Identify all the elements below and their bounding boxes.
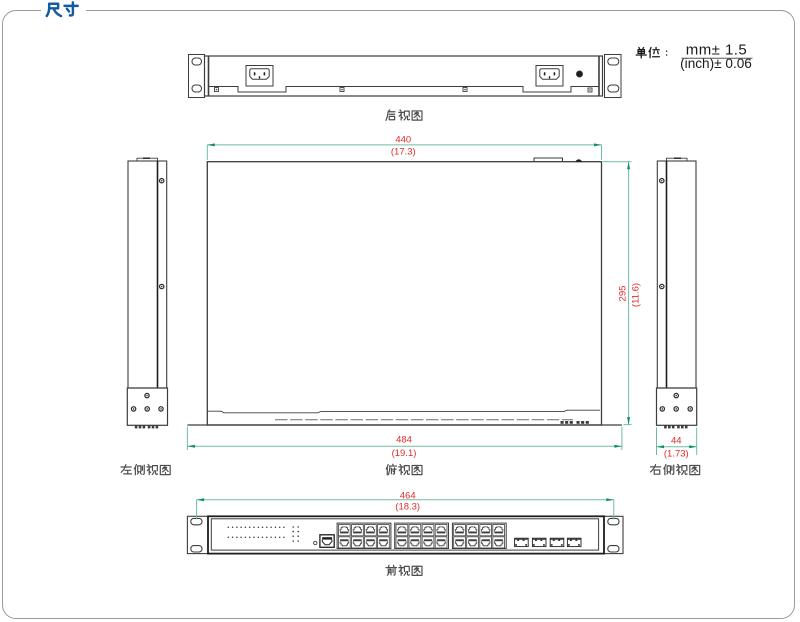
svg-text:440: 440 [395, 134, 411, 145]
svg-text:(11.6): (11.6) [631, 283, 642, 307]
svg-text:(19.1): (19.1) [392, 448, 417, 459]
svg-text:484: 484 [396, 434, 412, 445]
svg-text:464: 464 [400, 491, 416, 502]
svg-text:(18.3): (18.3) [395, 502, 420, 513]
svg-text:44: 44 [671, 436, 682, 447]
svg-text:(1.73): (1.73) [664, 449, 689, 460]
svg-text:(17.3): (17.3) [391, 146, 416, 157]
svg-text:295: 295 [618, 286, 629, 302]
